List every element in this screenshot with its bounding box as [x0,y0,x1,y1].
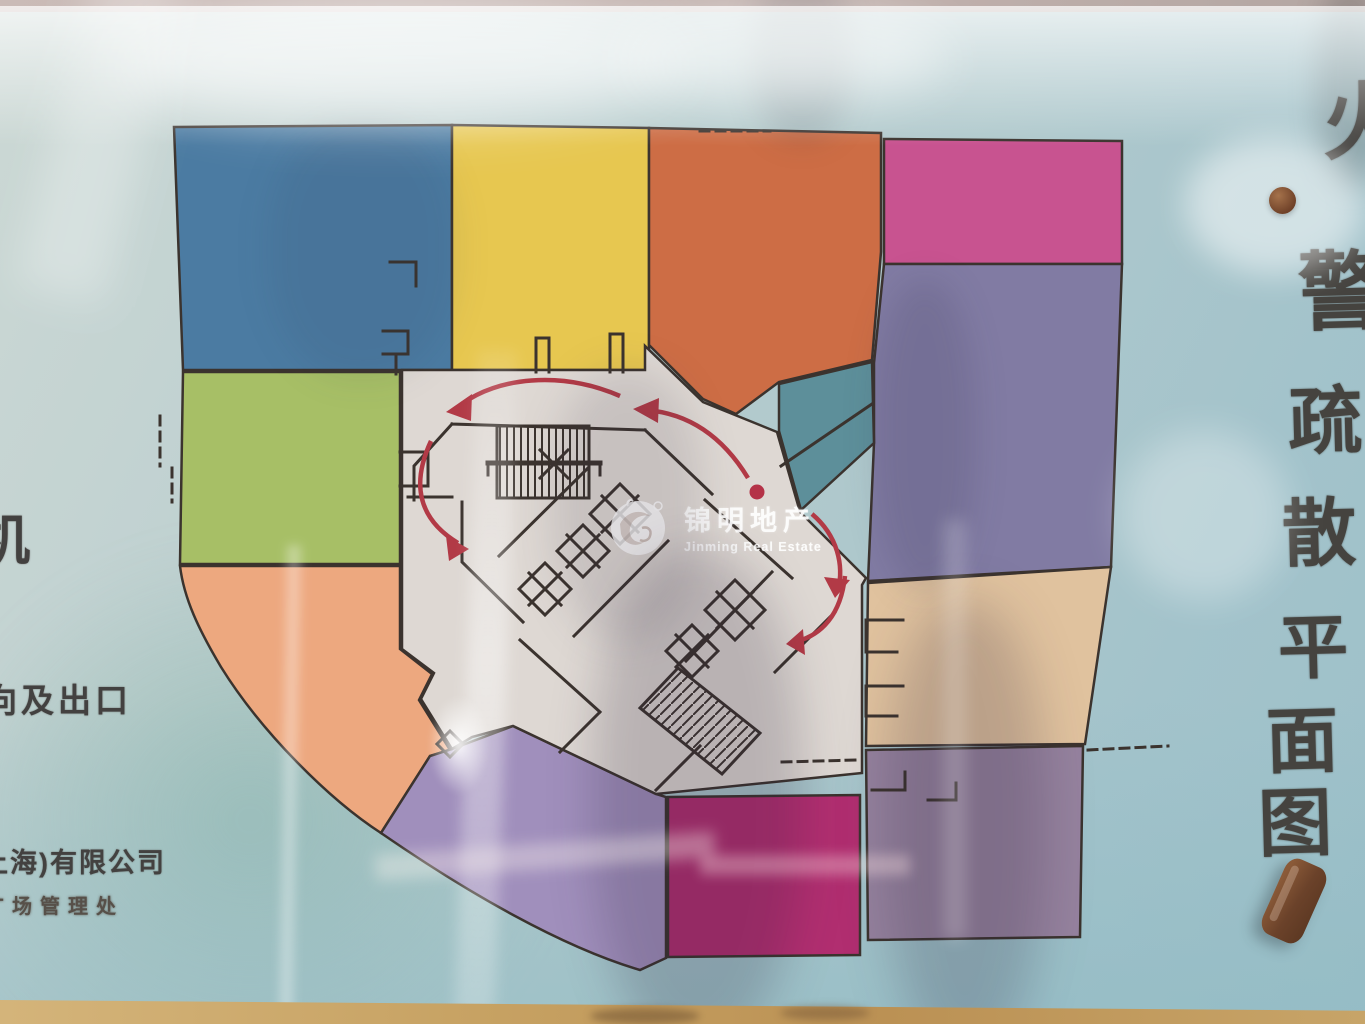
vertical-title-char: 平 [1277,591,1350,694]
label-machine: 机 [0,496,30,575]
zone-green [180,372,400,564]
label-company: (上海)有限公司 [0,841,166,880]
label-management-office: 广场管理处 [0,890,124,919]
vertical-title-char: 散 [1281,473,1358,582]
photo-of-evacuation-plan-sign: 锦明地产 Jinming Real Estate 机 向及出口 (上海)有限公司… [0,0,1365,1024]
shelf-stain [780,1006,870,1020]
person-shadow [268,120,458,380]
zone-pink [884,139,1122,264]
magnet-knob-top [1269,187,1296,214]
brand-name-cn: 锦明地产 [684,499,822,538]
label-exit-direction: 向及出口 [0,674,132,722]
shelf-stain [590,1008,700,1024]
person-shadow [592,550,802,1024]
vertical-title-char: 疏 [1287,361,1364,470]
person-shadow [875,280,975,590]
person-shadow [752,0,852,140]
vertical-title-char: 警 [1296,221,1365,348]
vertical-title-char: 图 [1257,763,1334,872]
person-shadow [885,600,1045,1024]
